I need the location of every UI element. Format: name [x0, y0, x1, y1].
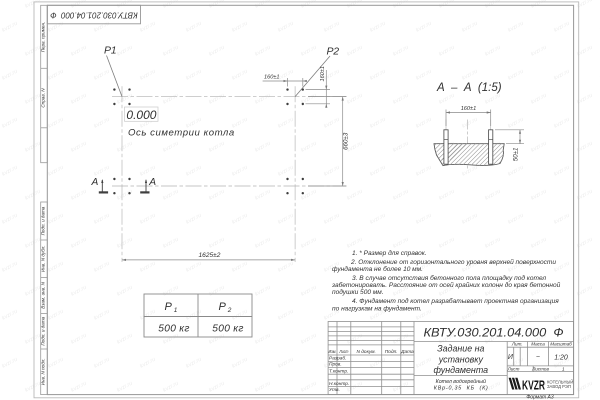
- svg-text:Ось симетрии котла: Ось симетрии котла: [128, 127, 235, 138]
- svg-text:ЗАВОД РЭП: ЗАВОД РЭП: [547, 384, 571, 389]
- svg-text:kvzr.ru: kvzr.ru: [323, 213, 340, 226]
- svg-text:kvzr.ru: kvzr.ru: [484, 237, 501, 250]
- svg-text:kvzr.ru: kvzr.ru: [392, 45, 409, 58]
- svg-text:kvzr.ru: kvzr.ru: [185, 261, 202, 274]
- svg-text:подушки 500 мм.: подушки 500 мм.: [332, 288, 384, 296]
- svg-text:kvzr.ru: kvzr.ru: [254, 93, 271, 106]
- svg-text:Котел водогрейный: Котел водогрейный: [436, 378, 486, 385]
- svg-text:kvzr.ru: kvzr.ru: [93, 261, 110, 274]
- svg-text:kvzr.ru: kvzr.ru: [47, 309, 64, 322]
- svg-text:kvzr.ru: kvzr.ru: [1, 21, 18, 34]
- svg-text:160±1: 160±1: [264, 75, 280, 81]
- svg-text:И: И: [508, 354, 514, 361]
- svg-text:kvzr.ru: kvzr.ru: [208, 237, 225, 250]
- svg-text:kvzr.ru: kvzr.ru: [231, 309, 248, 322]
- svg-text:kvzr.ru: kvzr.ru: [507, 165, 524, 178]
- svg-text:kvzr.ru: kvzr.ru: [300, 189, 317, 202]
- svg-text:Лит.: Лит.: [511, 342, 523, 347]
- svg-text:kvzr.ru: kvzr.ru: [231, 165, 248, 178]
- svg-text:2: 2: [227, 307, 232, 314]
- svg-text:500 кг: 500 кг: [212, 324, 243, 335]
- svg-text:50±1: 50±1: [513, 148, 520, 162]
- svg-text:kvzr.ru: kvzr.ru: [254, 285, 271, 298]
- svg-text:kvzr.ru: kvzr.ru: [162, 189, 179, 202]
- svg-text:kvzr.ru: kvzr.ru: [369, 213, 386, 226]
- svg-text:kvzr.ru: kvzr.ru: [277, 117, 294, 130]
- svg-text:kvzr.ru: kvzr.ru: [415, 21, 432, 34]
- svg-text:kvzr.ru: kvzr.ru: [254, 141, 271, 154]
- svg-text:kvzr.ru: kvzr.ru: [553, 309, 570, 322]
- svg-text:kvzr.ru: kvzr.ru: [70, 285, 87, 298]
- svg-text:Листов: Листов: [531, 366, 549, 371]
- svg-text:1: 1: [562, 366, 565, 371]
- svg-text:kvzr.ru: kvzr.ru: [70, 189, 87, 202]
- svg-text:kvzr.ru: kvzr.ru: [47, 21, 64, 34]
- svg-text:kvzr.ru: kvzr.ru: [231, 21, 248, 34]
- svg-text:kvzr.ru: kvzr.ru: [93, 117, 110, 130]
- svg-text:kvzr.ru: kvzr.ru: [1, 261, 18, 274]
- svg-text:Формат А3: Формат А3: [526, 394, 554, 400]
- svg-text:kvzr.ru: kvzr.ru: [277, 357, 294, 370]
- svg-text:kvzr.ru: kvzr.ru: [277, 213, 294, 226]
- svg-text:kvzr.ru: kvzr.ru: [392, 141, 409, 154]
- svg-text:kvzr.ru: kvzr.ru: [116, 93, 133, 106]
- svg-text:kvzr.ru: kvzr.ru: [47, 69, 64, 82]
- svg-text:1625±2: 1625±2: [199, 252, 221, 259]
- svg-text:kvzr.ru: kvzr.ru: [47, 117, 64, 130]
- svg-text:kvzr.ru: kvzr.ru: [415, 69, 432, 82]
- svg-text:kvzr.ru: kvzr.ru: [461, 69, 478, 82]
- svg-text:kvzr.ru: kvzr.ru: [116, 237, 133, 250]
- svg-text:kvzr.ru: kvzr.ru: [24, 93, 41, 106]
- svg-text:kvzr.ru: kvzr.ru: [185, 69, 202, 82]
- svg-text:kvzr.ru: kvzr.ru: [93, 309, 110, 322]
- svg-text:kvzr.ru: kvzr.ru: [300, 333, 317, 346]
- svg-text:kvzr.ru: kvzr.ru: [1, 357, 18, 370]
- svg-text:Взам. инв. N: Взам. инв. N: [41, 281, 46, 308]
- svg-text:kvzr.ru: kvzr.ru: [1, 213, 18, 226]
- svg-text:kvzr.ru: kvzr.ru: [507, 117, 524, 130]
- svg-text:kvzr.ru: kvzr.ru: [369, 357, 386, 370]
- svg-text:kvzr.ru: kvzr.ru: [116, 333, 133, 346]
- svg-text:kvzr.ru: kvzr.ru: [208, 189, 225, 202]
- svg-text:kvzr.ru: kvzr.ru: [415, 117, 432, 130]
- svg-text:kvzr.ru: kvzr.ru: [300, 141, 317, 154]
- svg-text:kvzr.ru: kvzr.ru: [369, 117, 386, 130]
- svg-text:kvzr.ru: kvzr.ru: [369, 165, 386, 178]
- svg-text:kvzr.ru: kvzr.ru: [93, 69, 110, 82]
- svg-text:kvzr.ru: kvzr.ru: [530, 45, 547, 58]
- svg-text:kvzr.ru: kvzr.ru: [24, 189, 41, 202]
- svg-text:kvzr.ru: kvzr.ru: [507, 309, 524, 322]
- svg-text:–: –: [535, 355, 540, 361]
- svg-text:kvzr.ru: kvzr.ru: [208, 45, 225, 58]
- svg-text:kvzr.ru: kvzr.ru: [139, 69, 156, 82]
- svg-text:kvzr.ru: kvzr.ru: [415, 357, 432, 370]
- svg-text:kvzr.ru: kvzr.ru: [1, 117, 18, 130]
- svg-text:Масштаб: Масштаб: [550, 342, 572, 347]
- svg-text:kvzr.ru: kvzr.ru: [392, 93, 409, 106]
- svg-text:kvzr.ru: kvzr.ru: [185, 165, 202, 178]
- svg-text:kvzr.ru: kvzr.ru: [507, 21, 524, 34]
- svg-text:kvzr.ru: kvzr.ru: [484, 45, 501, 58]
- svg-text:kvzr.ru: kvzr.ru: [116, 285, 133, 298]
- svg-text:kvzr.ru: kvzr.ru: [553, 213, 570, 226]
- svg-text:kvzr.ru: kvzr.ru: [24, 141, 41, 154]
- svg-text:kvzr.ru: kvzr.ru: [438, 93, 455, 106]
- svg-text:kvzr.ru: kvzr.ru: [254, 381, 271, 394]
- svg-text:kvzr.ru: kvzr.ru: [530, 189, 547, 202]
- svg-text:kvzr.ru: kvzr.ru: [93, 213, 110, 226]
- svg-text:kvzr.ru: kvzr.ru: [185, 357, 202, 370]
- svg-text:kvzr.ru: kvzr.ru: [346, 93, 363, 106]
- svg-text:kvzr.ru: kvzr.ru: [47, 165, 64, 178]
- svg-text:KVZR: KVZR: [522, 377, 545, 392]
- svg-text:160±1: 160±1: [461, 106, 477, 112]
- svg-text:kvzr.ru: kvzr.ru: [553, 117, 570, 130]
- svg-text:2. Отклонение от горизонтально: 2. Отклонение от горизонтального уровня …: [350, 258, 556, 266]
- svg-text:kvzr.ru: kvzr.ru: [185, 213, 202, 226]
- svg-text:kvzr.ru: kvzr.ru: [70, 333, 87, 346]
- svg-text:Разраб.: Разраб.: [329, 356, 346, 362]
- svg-text:kvzr.ru: kvzr.ru: [530, 93, 547, 106]
- svg-text:kvzr.ru: kvzr.ru: [300, 381, 317, 394]
- svg-text:kvzr.ru: kvzr.ru: [369, 69, 386, 82]
- svg-text:0.000: 0.000: [126, 108, 156, 122]
- svg-text:kvzr.ru: kvzr.ru: [231, 213, 248, 226]
- svg-text:kvzr.ru: kvzr.ru: [461, 213, 478, 226]
- svg-text:kvzr.ru: kvzr.ru: [1, 309, 18, 322]
- svg-text:kvzr.ru: kvzr.ru: [553, 69, 570, 82]
- svg-text:Задание на: Задание на: [437, 343, 484, 353]
- svg-text:kvzr.ru: kvzr.ru: [162, 237, 179, 250]
- svg-text:kvzr.ru: kvzr.ru: [254, 45, 271, 58]
- svg-text:установку: установку: [438, 355, 484, 365]
- svg-text:kvzr.ru: kvzr.ru: [553, 21, 570, 34]
- svg-text:kvzr.ru: kvzr.ru: [461, 21, 478, 34]
- svg-text:P: P: [219, 301, 227, 313]
- svg-text:kvzr.ru: kvzr.ru: [254, 237, 271, 250]
- svg-text:kvzr.ru: kvzr.ru: [277, 261, 294, 274]
- svg-text:4. Фундамент под котел разраба: 4. Фундамент под котел разрабатывает про…: [352, 297, 559, 305]
- svg-text:kvzr.ru: kvzr.ru: [300, 285, 317, 298]
- svg-text:КВТУ.030.201.04.000 Ф: КВТУ.030.201.04.000 Ф: [50, 11, 138, 20]
- svg-text:kvzr.ru: kvzr.ru: [24, 285, 41, 298]
- svg-text:A: A: [148, 177, 156, 188]
- svg-text:Подп. и дата: Подп. и дата: [41, 206, 46, 235]
- svg-text:kvzr.ru: kvzr.ru: [162, 93, 179, 106]
- svg-text:kvzr.ru: kvzr.ru: [139, 357, 156, 370]
- svg-text:Подп.: Подп.: [385, 349, 398, 355]
- svg-text:фундамента не более 10 мм.: фундамента не более 10 мм.: [332, 265, 423, 273]
- svg-text:kvzr.ru: kvzr.ru: [323, 21, 340, 34]
- svg-text:kvzr.ru: kvzr.ru: [438, 189, 455, 202]
- svg-text:kvzr.ru: kvzr.ru: [208, 381, 225, 394]
- svg-text:kvzr.ru: kvzr.ru: [47, 213, 64, 226]
- svg-text:Изм.: Изм.: [329, 349, 337, 355]
- svg-text:kvzr.ru: kvzr.ru: [47, 357, 64, 370]
- svg-text:160±1: 160±1: [320, 66, 326, 82]
- svg-text:kvzr.ru: kvzr.ru: [300, 45, 317, 58]
- svg-text:kvzr.ru: kvzr.ru: [300, 237, 317, 250]
- svg-text:kvzr.ru: kvzr.ru: [346, 189, 363, 202]
- svg-text:kvzr.ru: kvzr.ru: [254, 333, 271, 346]
- svg-text:забетонировать. Расстояние от: забетонировать. Расстояние от осей крайн…: [331, 281, 561, 289]
- svg-text:3. В случае отсутствия бетонно: 3. В случае отсутствия бетонного пола пл…: [352, 274, 546, 282]
- svg-text:kvzr.ru: kvzr.ru: [116, 45, 133, 58]
- svg-text:kvzr.ru: kvzr.ru: [70, 381, 87, 394]
- svg-text:kvzr.ru: kvzr.ru: [1, 165, 18, 178]
- svg-text:kvzr.ru: kvzr.ru: [162, 285, 179, 298]
- svg-text:kvzr.ru: kvzr.ru: [208, 285, 225, 298]
- svg-text:kvzr.ru: kvzr.ru: [438, 45, 455, 58]
- svg-text:kvzr.ru: kvzr.ru: [553, 165, 570, 178]
- svg-text:kvzr.ru: kvzr.ru: [392, 237, 409, 250]
- svg-text:kvzr.ru: kvzr.ru: [346, 45, 363, 58]
- svg-text:kvzr.ru: kvzr.ru: [24, 381, 41, 394]
- svg-text:КВр-0,35 КБ (К): КВр-0,35 КБ (К): [434, 385, 488, 391]
- svg-text:kvzr.ru: kvzr.ru: [70, 45, 87, 58]
- svg-text:P1: P1: [104, 45, 116, 57]
- svg-text:kvzr.ru: kvzr.ru: [47, 261, 64, 274]
- svg-text:kvzr.ru: kvzr.ru: [277, 69, 294, 82]
- svg-text:kvzr.ru: kvzr.ru: [24, 45, 41, 58]
- svg-text:kvzr.ru: kvzr.ru: [346, 333, 363, 346]
- svg-text:kvzr.ru: kvzr.ru: [162, 141, 179, 154]
- svg-text:kvzr.ru: kvzr.ru: [93, 357, 110, 370]
- svg-text:kvzr.ru: kvzr.ru: [484, 189, 501, 202]
- svg-text:Н.контр.: Н.контр.: [329, 381, 349, 387]
- svg-text:kvzr.ru: kvzr.ru: [93, 165, 110, 178]
- svg-text:kvzr.ru: kvzr.ru: [461, 117, 478, 130]
- svg-text:kvzr.ru: kvzr.ru: [231, 357, 248, 370]
- svg-text:kvzr.ru: kvzr.ru: [1, 69, 18, 82]
- svg-text:kvzr.ru: kvzr.ru: [139, 21, 156, 34]
- svg-text:kvzr.ru: kvzr.ru: [323, 165, 340, 178]
- svg-text:Подп. и дата: Подп. и дата: [41, 316, 46, 345]
- svg-text:kvzr.ru: kvzr.ru: [323, 117, 340, 130]
- svg-text:kvzr.ru: kvzr.ru: [139, 261, 156, 274]
- svg-text:kvzr.ru: kvzr.ru: [185, 309, 202, 322]
- svg-text:kvzr.ru: kvzr.ru: [415, 213, 432, 226]
- svg-text:A: A: [91, 177, 99, 188]
- svg-text:Перв. примен.: Перв. примен.: [41, 22, 46, 53]
- svg-text:kvzr.ru: kvzr.ru: [438, 237, 455, 250]
- svg-text:kvzr.ru: kvzr.ru: [139, 309, 156, 322]
- svg-text:Пров.: Пров.: [329, 362, 342, 368]
- svg-text:kvzr.ru: kvzr.ru: [208, 333, 225, 346]
- svg-text:Лист: Лист: [339, 349, 349, 355]
- svg-text:kvzr.ru: kvzr.ru: [392, 189, 409, 202]
- svg-text:kvzr.ru: kvzr.ru: [484, 93, 501, 106]
- svg-text:kvzr.ru: kvzr.ru: [24, 333, 41, 346]
- svg-text:Т.контр.: Т.контр.: [329, 368, 348, 374]
- svg-text:Лист: Лист: [507, 366, 520, 371]
- svg-text:kvzr.ru: kvzr.ru: [70, 237, 87, 250]
- svg-text:kvzr.ru: kvzr.ru: [162, 333, 179, 346]
- svg-text:Инв. N дубл.: Инв. N дубл.: [41, 245, 46, 272]
- svg-text:Утв.: Утв.: [329, 387, 340, 393]
- svg-text:Масса: Масса: [531, 342, 545, 347]
- svg-text:kvzr.ru: kvzr.ru: [231, 69, 248, 82]
- svg-text:kvzr.ru: kvzr.ru: [139, 213, 156, 226]
- svg-text:Инв. N подл.: Инв. N подл.: [41, 358, 46, 385]
- svg-text:1:20: 1:20: [554, 355, 568, 362]
- svg-text:1: 1: [174, 307, 178, 314]
- svg-text:kvzr.ru: kvzr.ru: [231, 261, 248, 274]
- svg-text:фундамента: фундамента: [434, 365, 489, 375]
- svg-text:kvzr.ru: kvzr.ru: [461, 165, 478, 178]
- svg-text:P: P: [165, 301, 173, 313]
- svg-text:КВТУ.030.201.04.000 Ф: КВТУ.030.201.04.000 Ф: [424, 325, 564, 339]
- svg-text:kvzr.ru: kvzr.ru: [70, 141, 87, 154]
- svg-text:kvzr.ru: kvzr.ru: [277, 21, 294, 34]
- svg-text:kvzr.ru: kvzr.ru: [369, 21, 386, 34]
- svg-text:kvzr.ru: kvzr.ru: [530, 141, 547, 154]
- svg-text:kvzr.ru: kvzr.ru: [415, 165, 432, 178]
- svg-text:500 кг: 500 кг: [158, 324, 189, 335]
- svg-text:N докум.: N докум.: [356, 349, 375, 355]
- svg-text:kvzr.ru: kvzr.ru: [277, 309, 294, 322]
- svg-text:kvzr.ru: kvzr.ru: [162, 45, 179, 58]
- svg-text:kvzr.ru: kvzr.ru: [530, 237, 547, 250]
- svg-text:kvzr.ru: kvzr.ru: [185, 21, 202, 34]
- svg-text:kvzr.ru: kvzr.ru: [24, 237, 41, 250]
- svg-text:kvzr.ru: kvzr.ru: [208, 141, 225, 154]
- svg-text:kvzr.ru: kvzr.ru: [116, 381, 133, 394]
- svg-text:Справ. N: Справ. N: [41, 88, 46, 108]
- svg-text:P2: P2: [327, 46, 340, 58]
- svg-text:660±3: 660±3: [343, 132, 350, 150]
- svg-text:kvzr.ru: kvzr.ru: [507, 213, 524, 226]
- svg-text:kvzr.ru: kvzr.ru: [139, 165, 156, 178]
- svg-text:kvzr.ru: kvzr.ru: [70, 93, 87, 106]
- svg-text:kvzr.ru: kvzr.ru: [93, 21, 110, 34]
- svg-text:kvzr.ru: kvzr.ru: [116, 189, 133, 202]
- svg-text:kvzr.ru: kvzr.ru: [116, 141, 133, 154]
- svg-text:kvzr.ru: kvzr.ru: [277, 165, 294, 178]
- svg-text:kvzr.ru: kvzr.ru: [162, 381, 179, 394]
- svg-text:kvzr.ru: kvzr.ru: [461, 309, 478, 322]
- svg-text:kvzr.ru: kvzr.ru: [507, 69, 524, 82]
- svg-text:по нагрузкам на фундамент.: по нагрузкам на фундамент.: [332, 305, 422, 313]
- svg-text:kvzr.ru: kvzr.ru: [208, 93, 225, 106]
- svg-text:kvzr.ru: kvzr.ru: [254, 189, 271, 202]
- svg-text:1. * Размер для справок.: 1. * Размер для справок.: [352, 249, 427, 257]
- svg-text:A – A (1:5): A – A (1:5): [436, 82, 502, 94]
- svg-text:kvzr.ru: kvzr.ru: [346, 237, 363, 250]
- svg-text:Дата: Дата: [400, 349, 414, 355]
